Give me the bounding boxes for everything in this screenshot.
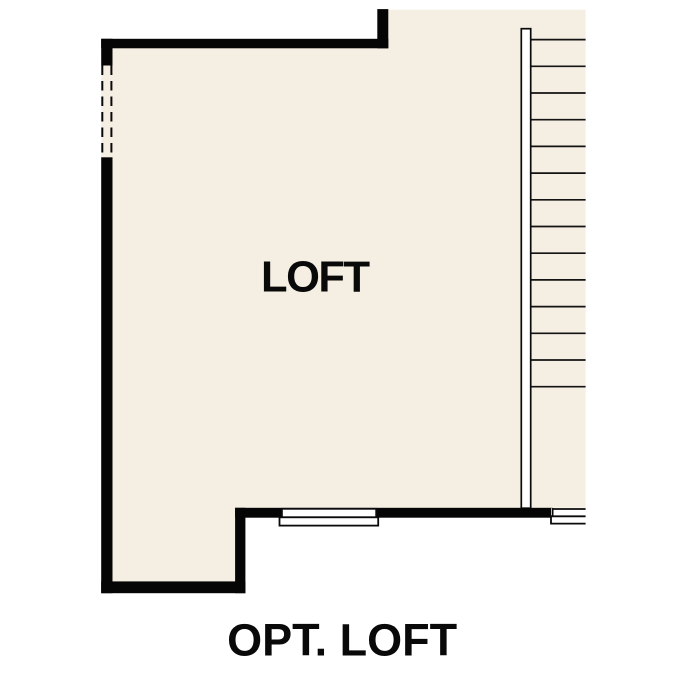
svg-text:OPT. LOFT: OPT. LOFT <box>227 615 457 666</box>
svg-text:LOFT: LOFT <box>261 254 370 302</box>
